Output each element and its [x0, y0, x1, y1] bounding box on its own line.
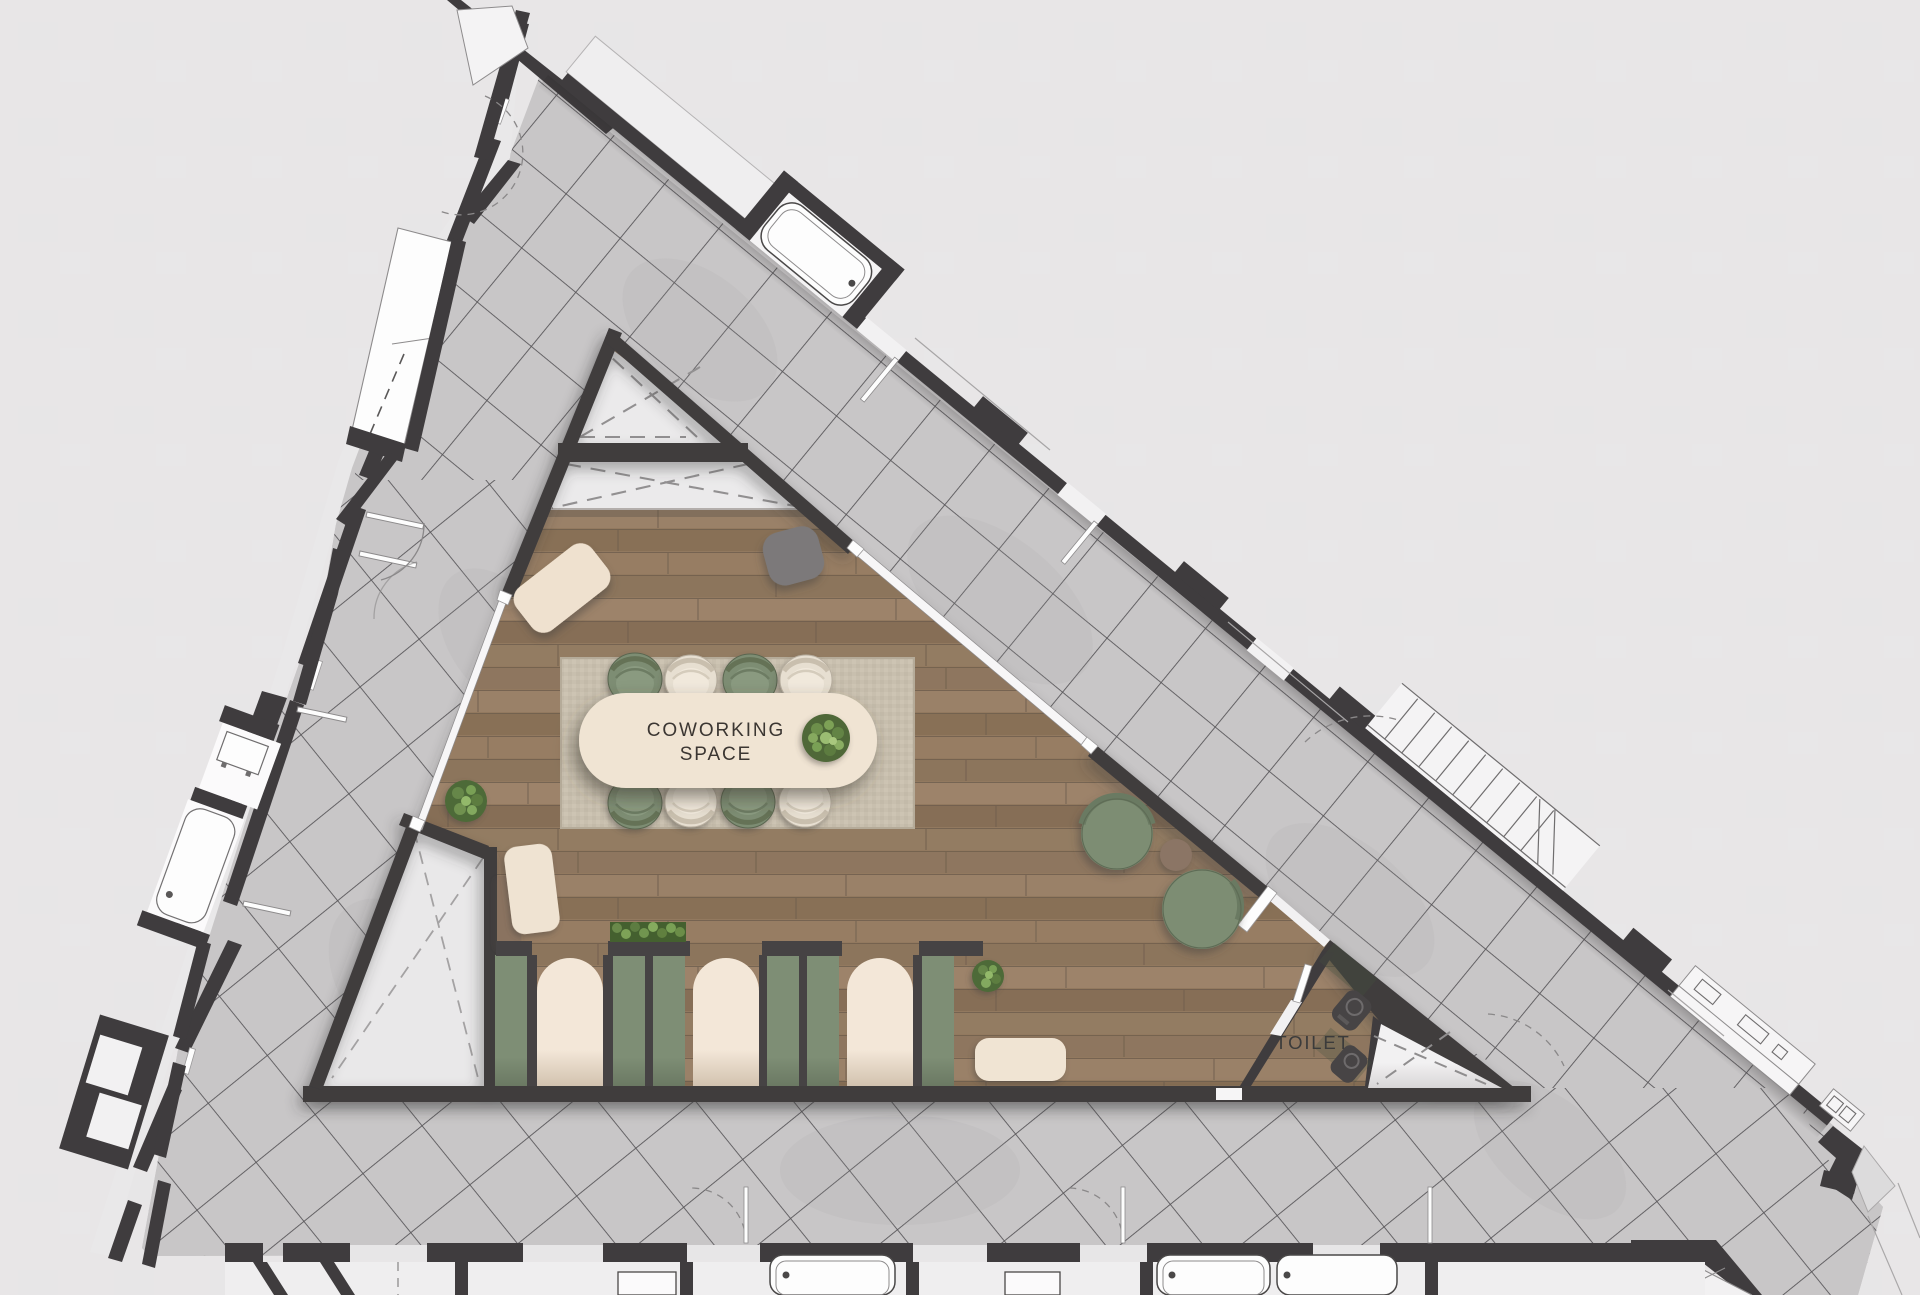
- svg-text:TOILET: TOILET: [1275, 1032, 1350, 1053]
- svg-text:COWORKING: COWORKING: [647, 720, 786, 741]
- svg-text:SPACE: SPACE: [680, 744, 753, 765]
